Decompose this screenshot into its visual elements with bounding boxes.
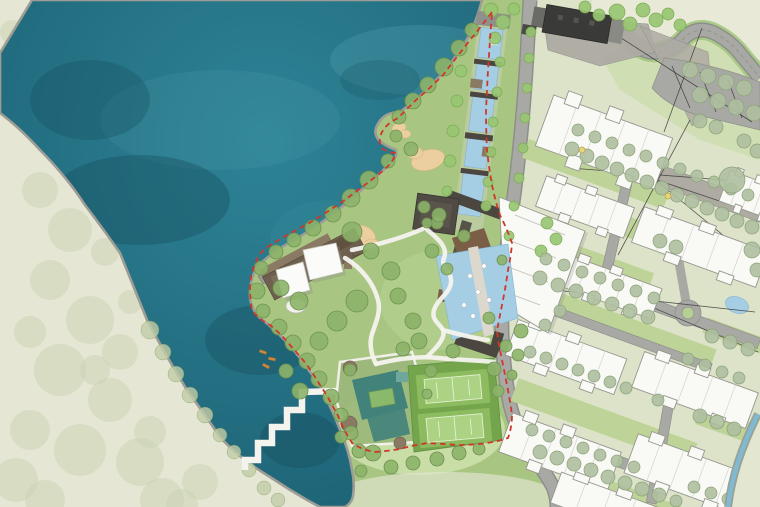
tree: [593, 9, 605, 21]
tree: [741, 342, 755, 356]
tree: [323, 389, 339, 405]
tree: [500, 340, 512, 352]
tree: [458, 230, 470, 242]
tree: [512, 349, 524, 361]
tree: [652, 394, 664, 406]
tree: [249, 283, 265, 299]
tree: [709, 120, 723, 134]
tree: [396, 342, 410, 356]
tree: [509, 201, 519, 211]
tree: [611, 455, 623, 467]
tree: [736, 80, 752, 96]
tree: [355, 465, 367, 477]
site-plan-drawing: [0, 0, 760, 507]
tree: [425, 244, 439, 258]
tree: [360, 171, 378, 189]
tree: [623, 144, 635, 156]
tree: [718, 74, 734, 90]
tree: [447, 125, 459, 137]
tree: [623, 17, 637, 31]
spine-marker: [665, 193, 671, 199]
tree: [685, 194, 699, 208]
tree: [365, 445, 381, 461]
tree: [682, 353, 694, 365]
tree: [422, 218, 432, 228]
tree: [524, 53, 534, 63]
tree: [514, 173, 524, 183]
tree: [550, 233, 562, 245]
tree: [134, 416, 166, 448]
tree: [254, 261, 268, 275]
tree: [635, 482, 649, 496]
tree: [526, 424, 538, 436]
tree: [334, 408, 348, 422]
pool-lounger: [476, 290, 480, 294]
tree: [342, 189, 360, 207]
tree: [213, 428, 227, 442]
tree: [155, 344, 171, 360]
tree: [628, 461, 640, 473]
tree: [601, 470, 615, 484]
tree: [682, 62, 698, 78]
tree: [54, 424, 106, 476]
tree: [430, 452, 444, 466]
tree: [623, 304, 637, 318]
tree: [533, 271, 547, 285]
tree: [488, 117, 498, 127]
tree: [496, 15, 510, 29]
tree: [524, 346, 536, 358]
tree: [700, 201, 714, 215]
tree: [495, 57, 505, 67]
shallow-pool: [396, 372, 408, 382]
tree: [492, 385, 504, 397]
pool-lounger: [482, 264, 486, 268]
tree: [390, 288, 406, 304]
tree: [352, 444, 366, 458]
tree: [670, 188, 684, 202]
tree: [273, 280, 289, 296]
tree: [606, 137, 618, 149]
tree: [390, 130, 402, 142]
tree: [344, 364, 356, 376]
tree: [34, 344, 86, 396]
tree: [716, 366, 728, 378]
tree: [442, 186, 452, 196]
tree: [745, 220, 759, 234]
tree: [594, 272, 606, 284]
tree: [612, 279, 624, 291]
tree: [492, 87, 502, 97]
tree: [197, 407, 213, 423]
tree: [727, 422, 741, 436]
pool-lounger: [471, 314, 475, 318]
tree: [554, 305, 566, 317]
tree: [653, 234, 667, 248]
tree: [719, 167, 745, 193]
tree: [556, 358, 568, 370]
tree: [227, 445, 241, 459]
tree: [541, 217, 553, 229]
tree: [446, 344, 460, 358]
tree: [465, 23, 479, 37]
tree: [305, 220, 321, 236]
tree: [526, 27, 536, 37]
tree: [418, 201, 430, 213]
tree: [710, 415, 724, 429]
tree: [693, 114, 707, 128]
pool-lounger: [468, 274, 472, 278]
tree: [452, 446, 466, 460]
tree: [405, 313, 421, 329]
tree: [168, 366, 184, 382]
tree: [662, 8, 674, 20]
tree: [257, 481, 271, 495]
tree: [269, 245, 283, 259]
tree: [618, 476, 632, 490]
tree: [595, 156, 609, 170]
tree: [425, 365, 437, 377]
tree: [540, 253, 552, 265]
tree: [636, 3, 650, 17]
tree: [411, 333, 427, 349]
tree: [455, 65, 467, 77]
spine-marker: [579, 147, 585, 153]
tree: [587, 291, 601, 305]
tree: [670, 495, 682, 507]
tree: [497, 255, 507, 265]
tree: [589, 131, 601, 143]
tree: [422, 389, 432, 399]
tree: [584, 463, 598, 477]
tree: [730, 214, 744, 228]
tree: [572, 364, 584, 376]
tree: [744, 242, 760, 258]
tree: [522, 83, 532, 93]
tree: [432, 208, 446, 222]
tree: [327, 311, 347, 331]
tree: [705, 487, 717, 499]
tree: [737, 134, 751, 148]
tree: [406, 456, 420, 470]
tree: [733, 372, 745, 384]
tree: [625, 168, 639, 182]
tree: [649, 13, 663, 27]
tree: [567, 457, 581, 471]
tree: [540, 352, 552, 364]
tree: [483, 312, 495, 324]
tree: [640, 150, 652, 162]
tree: [520, 113, 530, 123]
tree: [688, 481, 700, 493]
tree: [641, 310, 655, 324]
tree: [705, 329, 719, 343]
tennis-court: [418, 408, 493, 448]
tree: [48, 208, 92, 252]
tree: [30, 260, 70, 300]
tree: [708, 176, 720, 188]
tree: [285, 335, 301, 351]
tree: [609, 4, 625, 20]
tree: [487, 362, 501, 376]
tree: [66, 296, 114, 344]
tree: [310, 332, 328, 350]
tree: [182, 387, 198, 403]
tree: [558, 259, 570, 271]
tree: [742, 189, 754, 201]
tree: [605, 297, 619, 311]
tree: [648, 292, 660, 304]
tree: [256, 304, 270, 318]
tree: [699, 359, 711, 371]
tree: [279, 364, 293, 378]
tree: [610, 162, 624, 176]
tree: [723, 335, 737, 349]
tree: [290, 292, 308, 310]
tree: [382, 262, 400, 280]
tree: [420, 77, 436, 93]
tree: [514, 324, 528, 338]
tree: [507, 370, 517, 380]
tree: [569, 284, 583, 298]
tree: [710, 93, 726, 109]
tree: [572, 124, 584, 136]
tree: [674, 19, 686, 31]
tree: [543, 430, 555, 442]
tree: [550, 451, 564, 465]
tree: [565, 142, 579, 156]
pool-lounger: [462, 303, 466, 307]
tree: [533, 445, 547, 459]
tree: [657, 157, 669, 169]
tree: [588, 370, 600, 382]
tree: [560, 436, 572, 448]
tree: [604, 376, 616, 388]
tree: [594, 449, 606, 461]
tree: [451, 95, 463, 107]
tree: [404, 142, 418, 156]
tree: [363, 243, 379, 259]
tree: [700, 68, 716, 84]
tree: [669, 240, 683, 254]
tree: [508, 3, 520, 15]
tree: [518, 143, 528, 153]
tree: [577, 442, 589, 454]
tree: [441, 263, 453, 275]
tree: [620, 382, 632, 394]
pool-lounger: [487, 298, 491, 302]
tree: [652, 488, 666, 502]
tree: [481, 201, 491, 211]
tree: [715, 207, 729, 221]
tree: [141, 321, 159, 339]
tree: [346, 290, 368, 312]
tree: [674, 163, 686, 175]
tree: [579, 1, 591, 13]
tree: [292, 383, 308, 399]
tree: [10, 410, 50, 450]
tree: [342, 222, 362, 242]
tree: [444, 155, 456, 167]
tree: [271, 493, 285, 507]
tree: [630, 285, 642, 297]
site-plan: [0, 0, 760, 507]
tree: [22, 172, 58, 208]
tree: [693, 409, 707, 423]
tree: [287, 233, 301, 247]
tree: [691, 170, 703, 182]
tree: [14, 316, 46, 348]
tree: [640, 175, 654, 189]
tree: [746, 105, 760, 121]
tree: [576, 266, 588, 278]
tree: [80, 355, 110, 385]
tree: [299, 353, 315, 369]
tree: [405, 93, 421, 109]
tree: [551, 278, 565, 292]
tree: [692, 87, 708, 103]
tree: [504, 231, 514, 241]
tree: [384, 460, 398, 474]
tree: [539, 319, 551, 331]
tree: [728, 99, 744, 115]
